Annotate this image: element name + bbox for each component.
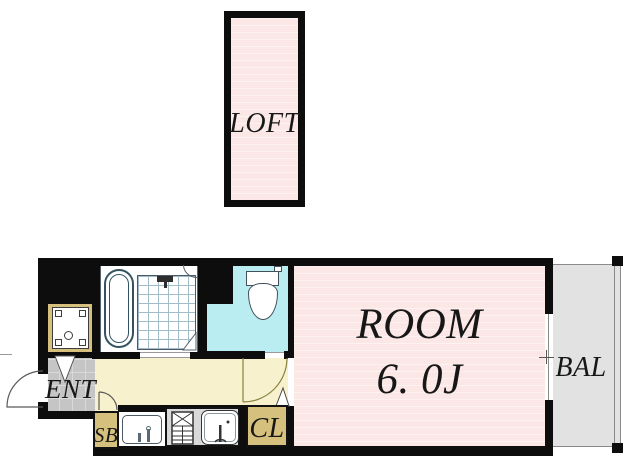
wall-right-lower (545, 400, 553, 456)
wall-bottom (93, 446, 553, 456)
loft-room: LOFT (224, 11, 305, 207)
balcony-label: BAL (550, 352, 612, 384)
pan-corner-tl (55, 310, 62, 317)
bathroom-door-marker (181, 331, 199, 352)
balcony-corner-post-bottom (612, 443, 623, 453)
closet: CL (246, 405, 288, 447)
entrance-label: ENT (46, 374, 95, 404)
closet-label: CL (248, 407, 286, 445)
washbasin-faucet-icon (134, 426, 158, 443)
wall-bath-bottom-right (190, 352, 202, 359)
bathroom-door-threshold (140, 352, 190, 358)
wall-bath-right (198, 266, 207, 356)
window-latch-mark-v (546, 350, 547, 364)
balcony-corner-post-top (612, 256, 623, 266)
shoe-box-label: SB (95, 413, 117, 447)
wall-bath-left (92, 266, 100, 356)
pan-corner-bl (55, 339, 62, 346)
wall-top (38, 258, 553, 266)
loft-ladder-icon (171, 411, 194, 445)
wall-room-left-upper (288, 266, 294, 358)
pan-drain-icon (64, 331, 73, 340)
room-label: ROOM (356, 303, 482, 346)
sink-faucet-icon (214, 418, 236, 445)
balcony-rail-outer (620, 264, 621, 447)
wall-entrance-bottom (38, 411, 100, 419)
wall-bath-bottom-left (92, 352, 140, 359)
balcony-rail-bottom (553, 446, 621, 447)
pan-corner-br (79, 339, 86, 346)
wall-room-left-lower (288, 406, 294, 446)
balcony-rail-inner (614, 264, 615, 447)
toilet-flush-handle (274, 266, 282, 272)
neighbor-wall-line (0, 354, 12, 355)
balcony-rail-top (553, 264, 621, 265)
toilet-room-lower (205, 302, 288, 354)
loft-label: LOFT (231, 18, 298, 200)
bathtub-inner-rim (109, 274, 129, 343)
pan-corner-tr (79, 310, 86, 317)
wall-right-upper (545, 258, 553, 314)
main-room-floor: ROOM 6. 0J (294, 266, 545, 446)
entrance-door-arc (0, 365, 46, 411)
room-size-label: 6. 0J (376, 358, 462, 401)
shoe-box: SB (93, 411, 119, 449)
floor-plan: LOFT ROOM 6. 0J BAL (0, 0, 640, 469)
shower-faucet-stem (164, 282, 167, 288)
